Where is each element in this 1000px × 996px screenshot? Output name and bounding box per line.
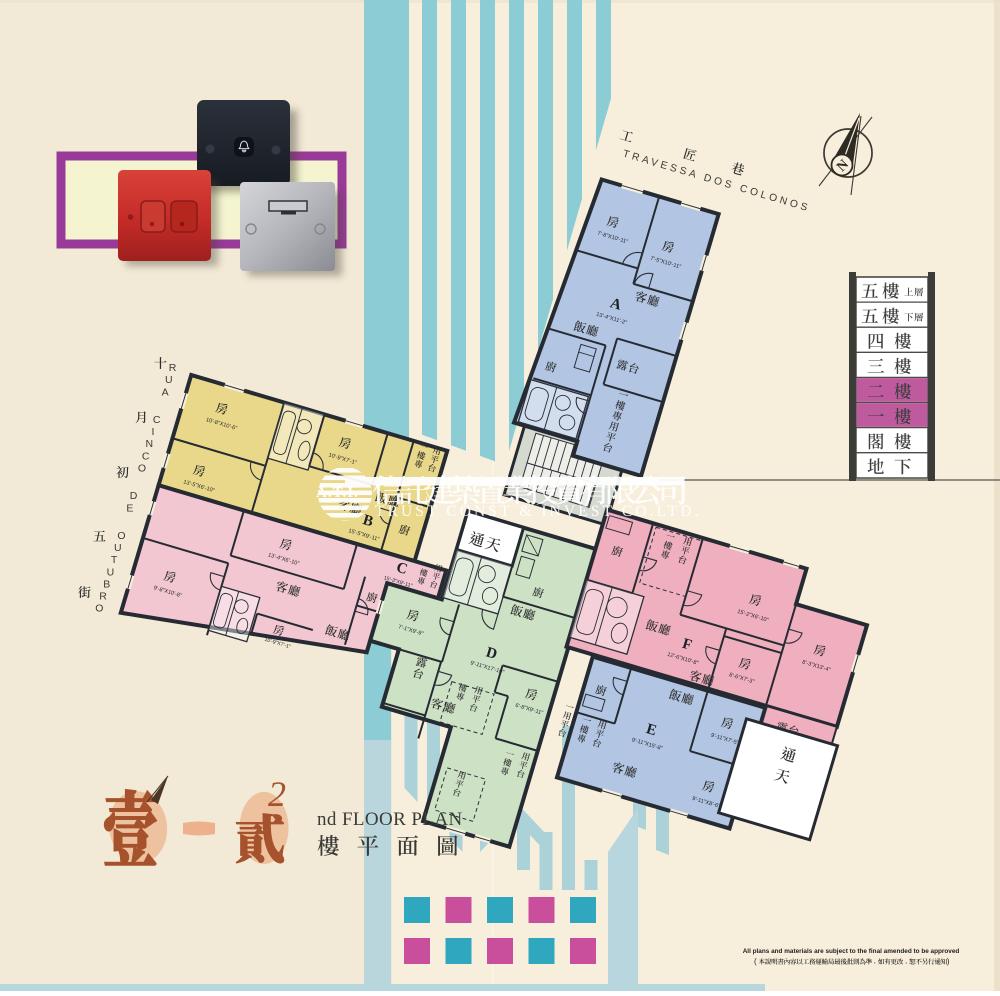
svg-text:T: T <box>111 554 118 566</box>
svg-text:A: A <box>162 386 169 398</box>
svg-text:R: R <box>99 591 107 603</box>
svg-text:U: U <box>165 374 173 386</box>
svg-text:,: , <box>905 958 907 965</box>
svg-text:N: N <box>146 438 154 450</box>
svg-text:O: O <box>117 530 125 542</box>
svg-text:nd FLOOR PLAN: nd FLOOR PLAN <box>317 809 463 830</box>
svg-text:I: I <box>152 426 155 438</box>
svg-text:R: R <box>169 362 177 374</box>
svg-text:O: O <box>138 463 146 475</box>
svg-text:U: U <box>114 542 122 554</box>
svg-text:C: C <box>153 414 161 426</box>
svg-text:U: U <box>107 566 115 578</box>
svg-text:All plans and materials are su: All plans and materials are subject to t… <box>743 948 960 955</box>
svg-text:B: B <box>103 579 110 591</box>
svg-text:E: E <box>126 502 133 514</box>
svg-text:2: 2 <box>268 774 286 814</box>
svg-text:(: ( <box>754 957 757 966</box>
svg-text:C: C <box>142 450 150 462</box>
svg-text:D: D <box>130 490 138 502</box>
svg-text:TRUST CONST & INVEST CO.LT: TRUST CONST & INVEST CO.LTD. <box>375 503 702 520</box>
svg-text:O: O <box>95 603 103 615</box>
svg-text:): ) <box>947 957 950 966</box>
svg-text:,: , <box>874 958 876 965</box>
svg-text:A.T.I.: A.T.I. <box>316 485 359 501</box>
